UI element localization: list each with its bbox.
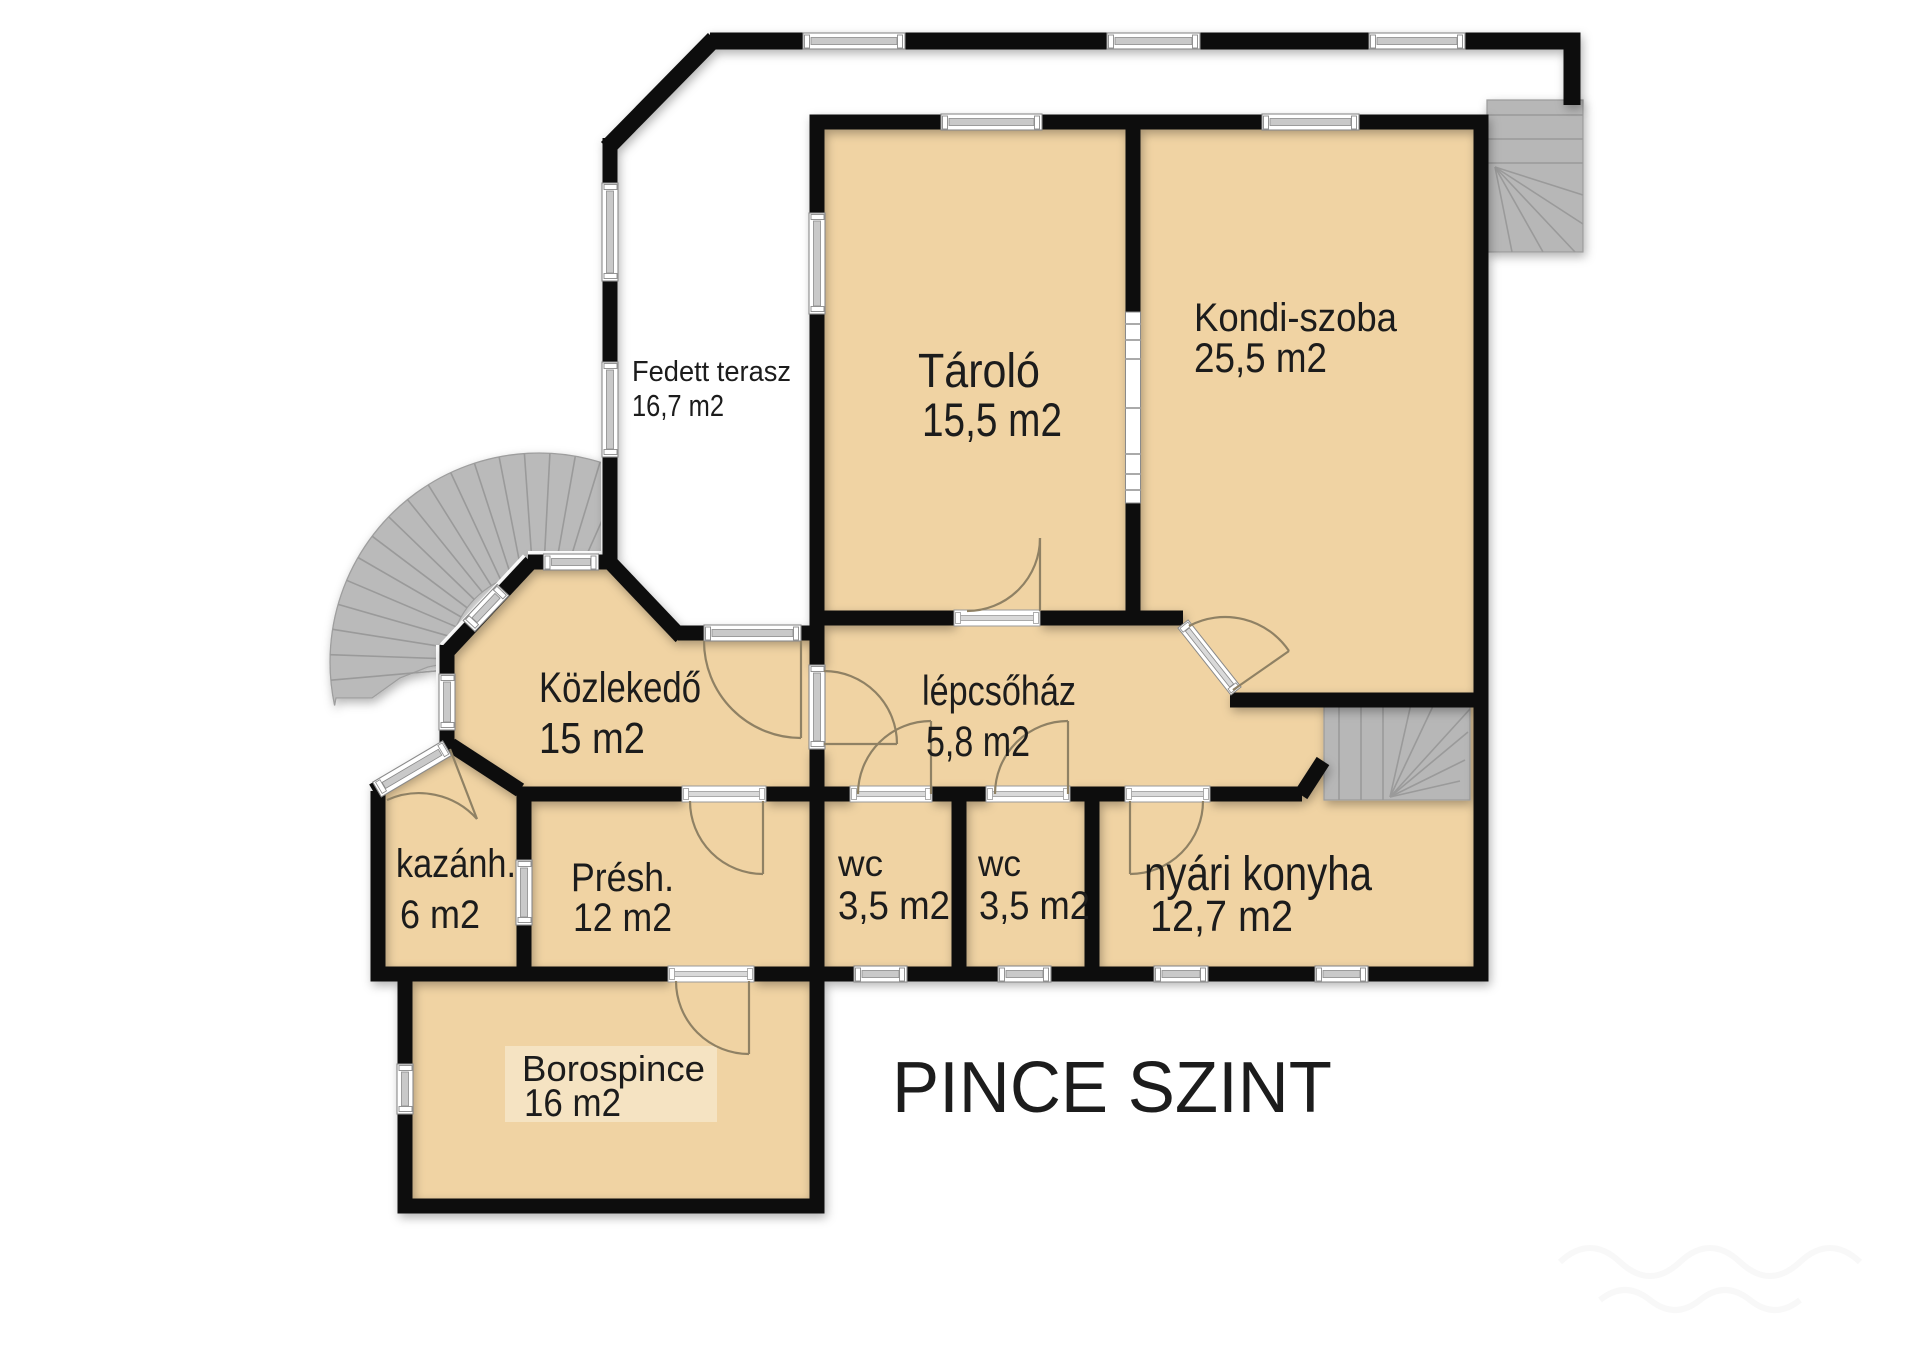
svg-text:15,5 m2: 15,5 m2 xyxy=(922,393,1062,446)
svg-text:3,5 m2: 3,5 m2 xyxy=(979,884,1090,928)
svg-text:lépcsőház: lépcsőház xyxy=(922,667,1076,714)
svg-text:5,8 m2: 5,8 m2 xyxy=(926,718,1030,766)
svg-text:6 m2: 6 m2 xyxy=(400,893,480,937)
svg-text:12,7 m2: 12,7 m2 xyxy=(1150,892,1293,941)
svg-text:15 m2: 15 m2 xyxy=(539,714,645,763)
svg-text:3,5 m2: 3,5 m2 xyxy=(838,884,950,928)
svg-text:Tároló: Tároló xyxy=(918,345,1040,398)
svg-text:16,7 m2: 16,7 m2 xyxy=(632,388,724,423)
svg-text:12 m2: 12 m2 xyxy=(573,896,672,940)
svg-text:wc: wc xyxy=(977,843,1021,884)
svg-text:25,5 m2: 25,5 m2 xyxy=(1194,334,1327,381)
svg-text:Fedett terasz: Fedett terasz xyxy=(632,356,791,388)
svg-text:Közlekedő: Közlekedő xyxy=(539,664,701,712)
svg-text:Présh.: Présh. xyxy=(571,856,674,900)
svg-text:16 m2: 16 m2 xyxy=(524,1082,621,1125)
svg-text:kazánh.: kazánh. xyxy=(396,842,516,886)
svg-text:wc: wc xyxy=(837,843,883,884)
svg-text:PINCE SZINT: PINCE SZINT xyxy=(892,1048,1332,1128)
